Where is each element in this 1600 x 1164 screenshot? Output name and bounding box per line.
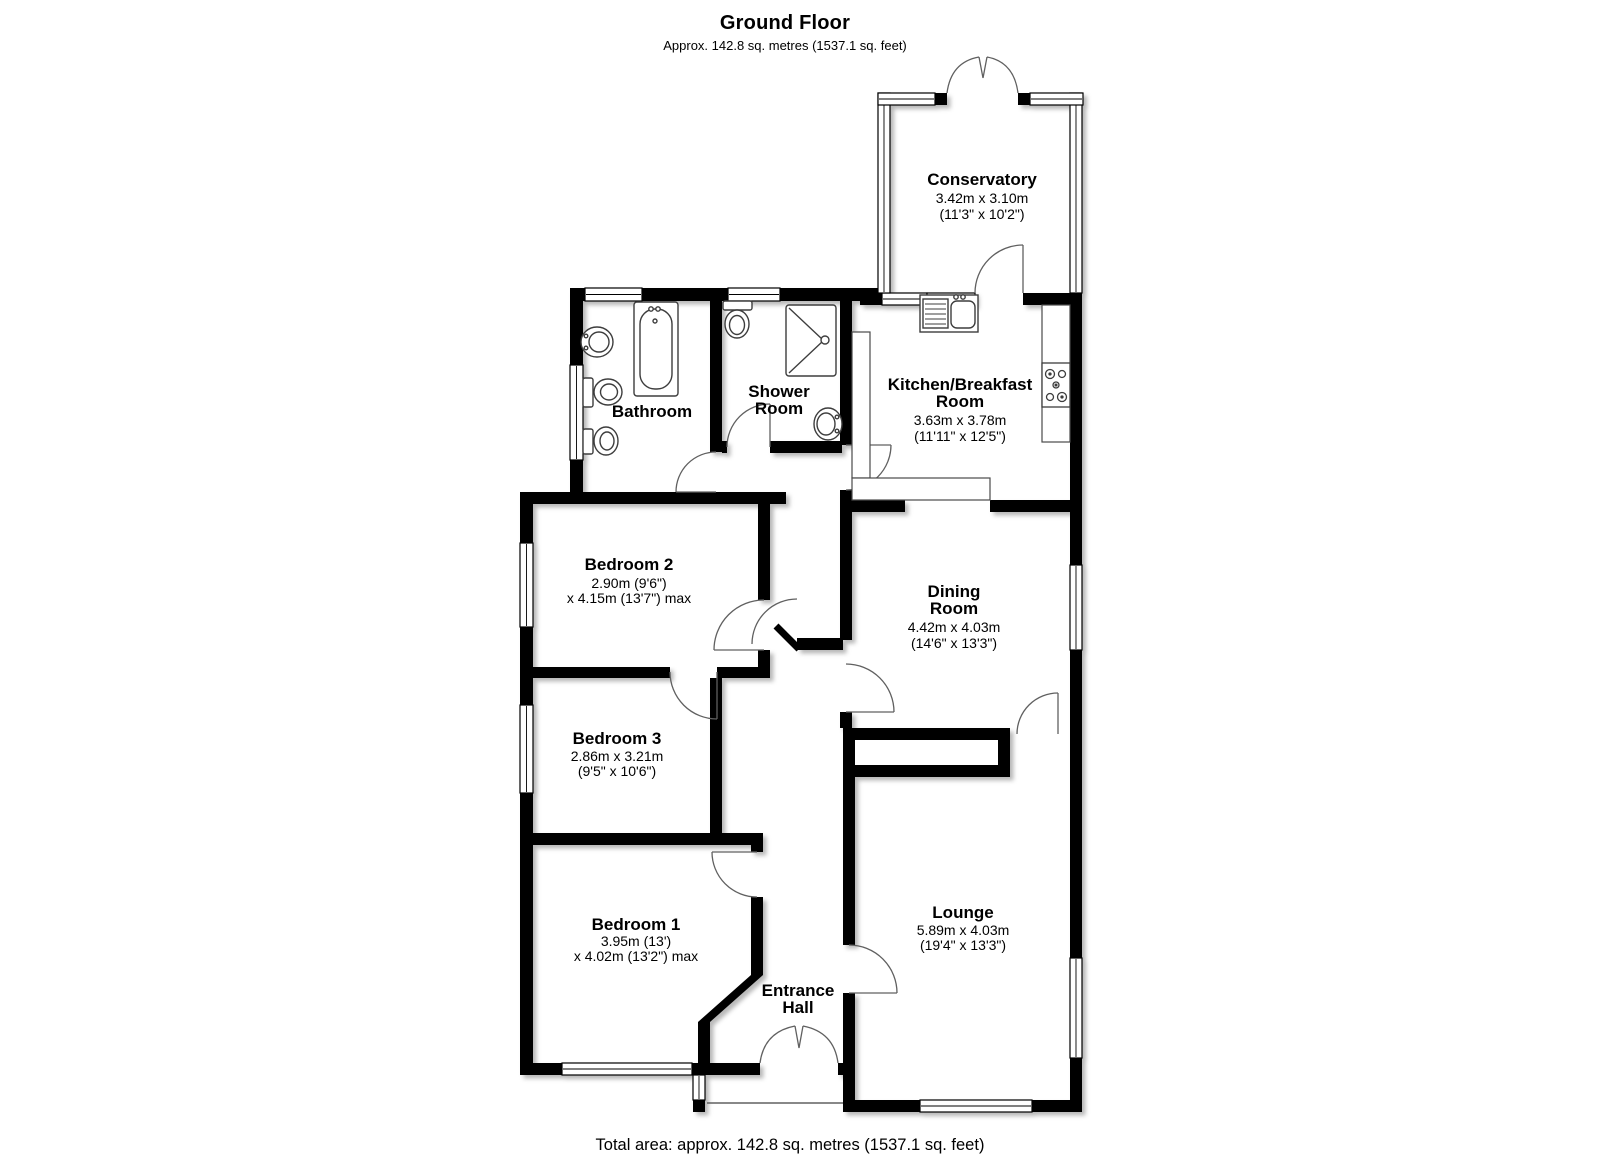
- bedroom3-door: [670, 672, 717, 719]
- wash-basin-icon: [814, 408, 842, 440]
- kitchen-sink-drainer-icon: [920, 295, 978, 332]
- shower-north-window: [728, 288, 780, 301]
- bedroom3-east-wall: [710, 678, 722, 845]
- conservatory-north-window-right: [1030, 93, 1083, 105]
- hall-west-wall-upper: [758, 504, 770, 600]
- floorplan-page: { "title": { "heading": "Ground Floor", …: [0, 0, 1600, 1164]
- bedroom3-south-wall: [520, 833, 763, 845]
- conservatory-north-window-left: [878, 93, 935, 105]
- bidet-icon: [583, 427, 618, 455]
- lounge-west-wall-lower: [843, 993, 855, 1100]
- floorplan-svg: Conservatory3.42m x 3.10m(11'3" x 10'2")…: [0, 0, 1600, 1164]
- dining-lounge-door-arc: [1017, 693, 1058, 734]
- room-label-dining-room-line-2: 4.42m x 4.03m: [908, 619, 1001, 635]
- room-label-bedroom-1-line-0: Bedroom 1: [592, 915, 681, 934]
- conservatory-door-jamb-left: [935, 93, 947, 105]
- bathroom-north-window: [585, 288, 642, 301]
- entrance-diagonal-wall: [698, 975, 763, 1022]
- bedroom2-west-window: [520, 543, 533, 627]
- dining-west-wall-upper: [840, 512, 852, 640]
- bedroom3-door-arc: [670, 672, 717, 719]
- conservatory-east-window: [1070, 93, 1082, 293]
- dining-west-wall-lower: [840, 712, 852, 728]
- kitchen-north-wall-right: [1023, 293, 1082, 305]
- band-divider-wall: [520, 492, 786, 504]
- entrance-double-doors: [760, 1026, 838, 1063]
- conservatory-door-arc: [975, 245, 1023, 293]
- shower-cubicle-icon: [786, 305, 836, 376]
- hall-door-stub-wall: [797, 638, 843, 650]
- bathtub-icon: [634, 302, 678, 396]
- chimney-breast-inner: [855, 740, 998, 765]
- shower-south-wall-left: [722, 441, 727, 453]
- bedroom1-door-arc: [712, 852, 757, 897]
- room-label-lounge-line-2: (19'4" x 13'3"): [920, 937, 1006, 953]
- porch-west-window: [693, 1075, 705, 1100]
- bedroom2-3-divider-right: [717, 667, 770, 678]
- bedroom1-south-window: [562, 1063, 692, 1075]
- room-label-bedroom-1-line-2: x 4.02m (13'2") max: [574, 948, 698, 964]
- dining-room-door-arc: [846, 664, 894, 712]
- toilet-icon: [723, 301, 752, 338]
- lounge-west-wall-upper: [843, 777, 855, 945]
- conservatory-french-doors: [947, 57, 1018, 93]
- dining-east-window: [1070, 565, 1082, 650]
- room-label-lounge-line-0: Lounge: [932, 903, 993, 922]
- kitchen-dining-wall-right: [990, 500, 1082, 512]
- room-label-kitchen-breakfast-room-line-2: 3.63m x 3.78m: [914, 412, 1007, 428]
- room-label-bedroom-1-line-1: 3.95m (13'): [601, 933, 671, 949]
- room-label-bedroom-2-line-0: Bedroom 2: [585, 555, 674, 574]
- shower-south-wall-right: [770, 441, 842, 453]
- room-label-shower-room-line-1: Room: [755, 399, 803, 418]
- conservatory-west-window: [878, 93, 890, 293]
- bathroom-door: [676, 452, 716, 492]
- bathroom-shower-wall: [710, 300, 722, 452]
- room-label-conservatory-line-2: (11'3" x 10'2"): [939, 206, 1024, 222]
- hob-icon: [1042, 363, 1070, 407]
- bedroom1-door: [712, 852, 757, 897]
- room-label-bedroom-2-line-2: x 4.15m (13'7") max: [567, 590, 691, 606]
- room-label-dining-room-line-3: (14'6" x 13'3"): [911, 635, 997, 651]
- conservatory-door-jamb-right: [1018, 93, 1030, 105]
- dining-room-door: [846, 664, 894, 712]
- room-label-entrance-hall-line-1: Hall: [782, 998, 813, 1017]
- room-label-kitchen-breakfast-room-line-3: (11'11" x 12'5"): [914, 428, 1006, 444]
- room-label-conservatory-line-1: 3.42m x 3.10m: [936, 190, 1029, 206]
- bathroom-door-arc: [676, 452, 716, 492]
- room-label-lounge-line-1: 5.89m x 4.03m: [917, 922, 1010, 938]
- entrance-south-wall-left: [705, 1063, 760, 1075]
- room-label-conservatory-line-0: Conservatory: [927, 170, 1037, 189]
- kitchen-north-wall-left: [860, 293, 882, 305]
- entrance-west-wall: [698, 1022, 710, 1075]
- bedroom1-east-wall-lower: [751, 897, 763, 975]
- room-label-bathroom-line-0: Bathroom: [612, 402, 692, 421]
- room-label-bedroom-3-line-2: (9'5" x 10'6"): [578, 763, 656, 779]
- room-label-bedroom-3-line-0: Bedroom 3: [573, 729, 662, 748]
- conservatory-door: [975, 245, 1023, 293]
- entrance-double-doors-arc: [760, 1026, 838, 1063]
- room-label-bedroom-3-line-1: 2.86m x 3.21m: [571, 748, 664, 764]
- room-label-dining-room-line-1: Room: [930, 599, 978, 618]
- bedroom3-west-window: [520, 705, 533, 793]
- dining-lounge-door: [1017, 693, 1058, 734]
- wash-basin-icon: [581, 327, 613, 357]
- bedroom1-east-wall-upper: [751, 845, 763, 852]
- lounge-door: [849, 945, 897, 993]
- hall-door-open-leaf: [776, 626, 799, 649]
- conservatory-french-doors-arc: [947, 57, 1018, 93]
- bedroom2-3-divider-left: [520, 667, 670, 678]
- room-label-bedroom-2-line-1: 2.90m (9'6"): [591, 575, 666, 591]
- kitchen-dining-wall-left: [840, 500, 905, 512]
- lounge-east-window: [1070, 958, 1082, 1058]
- room-label-kitchen-breakfast-room-line-1: Room: [936, 392, 984, 411]
- lounge-south-window: [920, 1100, 1032, 1112]
- bathroom-west-window: [570, 365, 583, 460]
- lounge-door-arc: [849, 945, 897, 993]
- total-area-text: Total area: approx. 142.8 sq. metres (15…: [0, 1136, 1580, 1155]
